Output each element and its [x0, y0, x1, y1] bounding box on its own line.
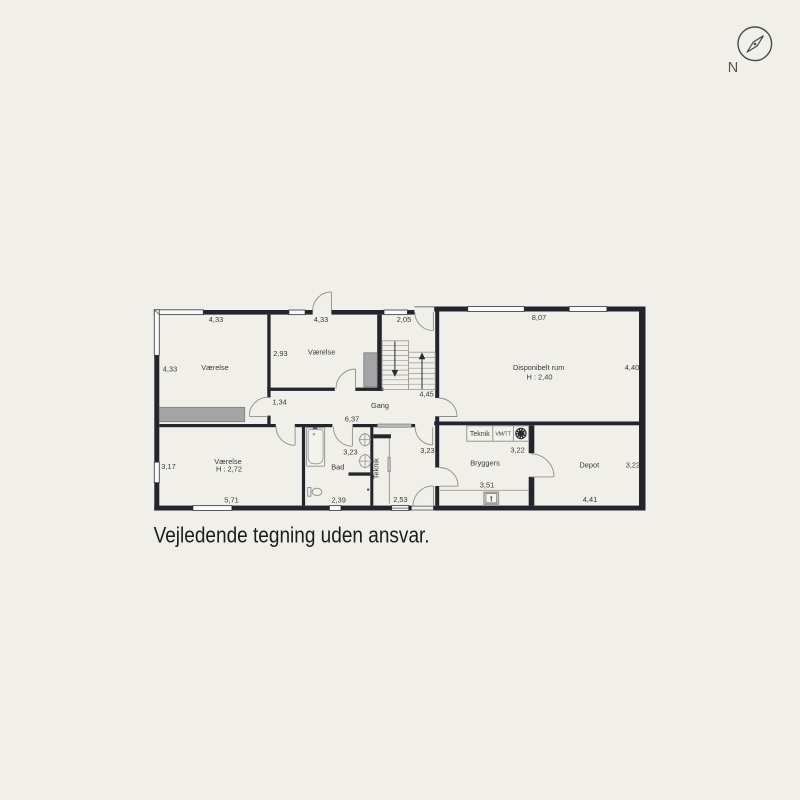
svg-text:2,93: 2,93	[273, 349, 287, 358]
svg-text:Vejledende tegning uden ansvar: Vejledende tegning uden ansvar.	[154, 523, 430, 548]
svg-text:4,41: 4,41	[583, 495, 597, 504]
svg-text:3,22: 3,22	[626, 461, 640, 470]
svg-text:2,53: 2,53	[393, 495, 407, 504]
svg-text:1,34: 1,34	[272, 397, 286, 406]
svg-text:H : 2,72: H : 2,72	[216, 465, 242, 474]
svg-text:3,23: 3,23	[343, 447, 357, 456]
svg-text:3,23: 3,23	[420, 446, 434, 455]
svg-text:Værelse: Værelse	[201, 363, 229, 372]
svg-text:Bryggers: Bryggers	[470, 458, 500, 467]
svg-text:Teknik: Teknik	[470, 431, 490, 438]
svg-text:2,39: 2,39	[332, 495, 346, 504]
svg-text:Disponibelt rum: Disponibelt rum	[513, 363, 564, 372]
svg-text:Værelse: Værelse	[308, 348, 336, 357]
svg-text:3,17: 3,17	[161, 462, 175, 471]
svg-text:2,05: 2,05	[397, 315, 411, 324]
svg-text:8,07: 8,07	[532, 313, 546, 322]
svg-text:4,33: 4,33	[163, 365, 177, 374]
svg-text:3,22: 3,22	[510, 445, 524, 454]
svg-text:Bad: Bad	[331, 463, 344, 472]
svg-text:4,40: 4,40	[625, 363, 639, 372]
svg-text:VM/TT: VM/TT	[495, 432, 511, 438]
svg-text:4,33: 4,33	[209, 315, 223, 324]
svg-text:Depot: Depot	[579, 461, 599, 470]
svg-text:5,71: 5,71	[224, 496, 238, 505]
svg-text:Gang: Gang	[371, 401, 389, 410]
svg-text:4,45: 4,45	[419, 389, 433, 398]
svg-text:4,33: 4,33	[314, 315, 328, 324]
svg-text:Teknik: Teknik	[372, 458, 381, 479]
svg-text:6,37: 6,37	[345, 415, 359, 424]
svg-text:H : 2,40: H : 2,40	[527, 373, 553, 382]
svg-text:3,51: 3,51	[480, 481, 494, 490]
svg-text:N: N	[728, 60, 738, 76]
